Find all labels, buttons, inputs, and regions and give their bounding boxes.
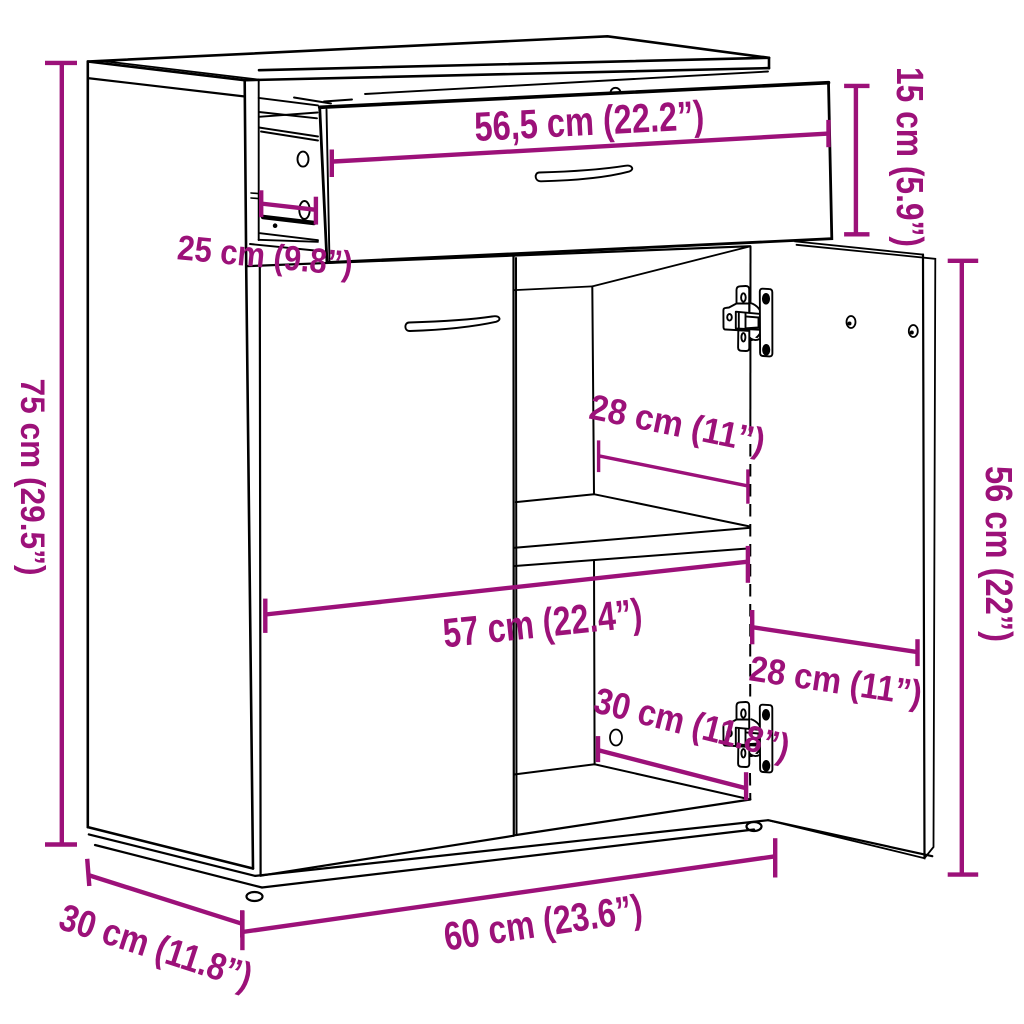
svg-text:56 cm (22”): 56 cm (22”) <box>977 466 1019 642</box>
svg-text:75 cm (29.5”): 75 cm (29.5”) <box>13 379 51 576</box>
svg-text:15 cm (5.9”): 15 cm (5.9”) <box>888 67 930 247</box>
